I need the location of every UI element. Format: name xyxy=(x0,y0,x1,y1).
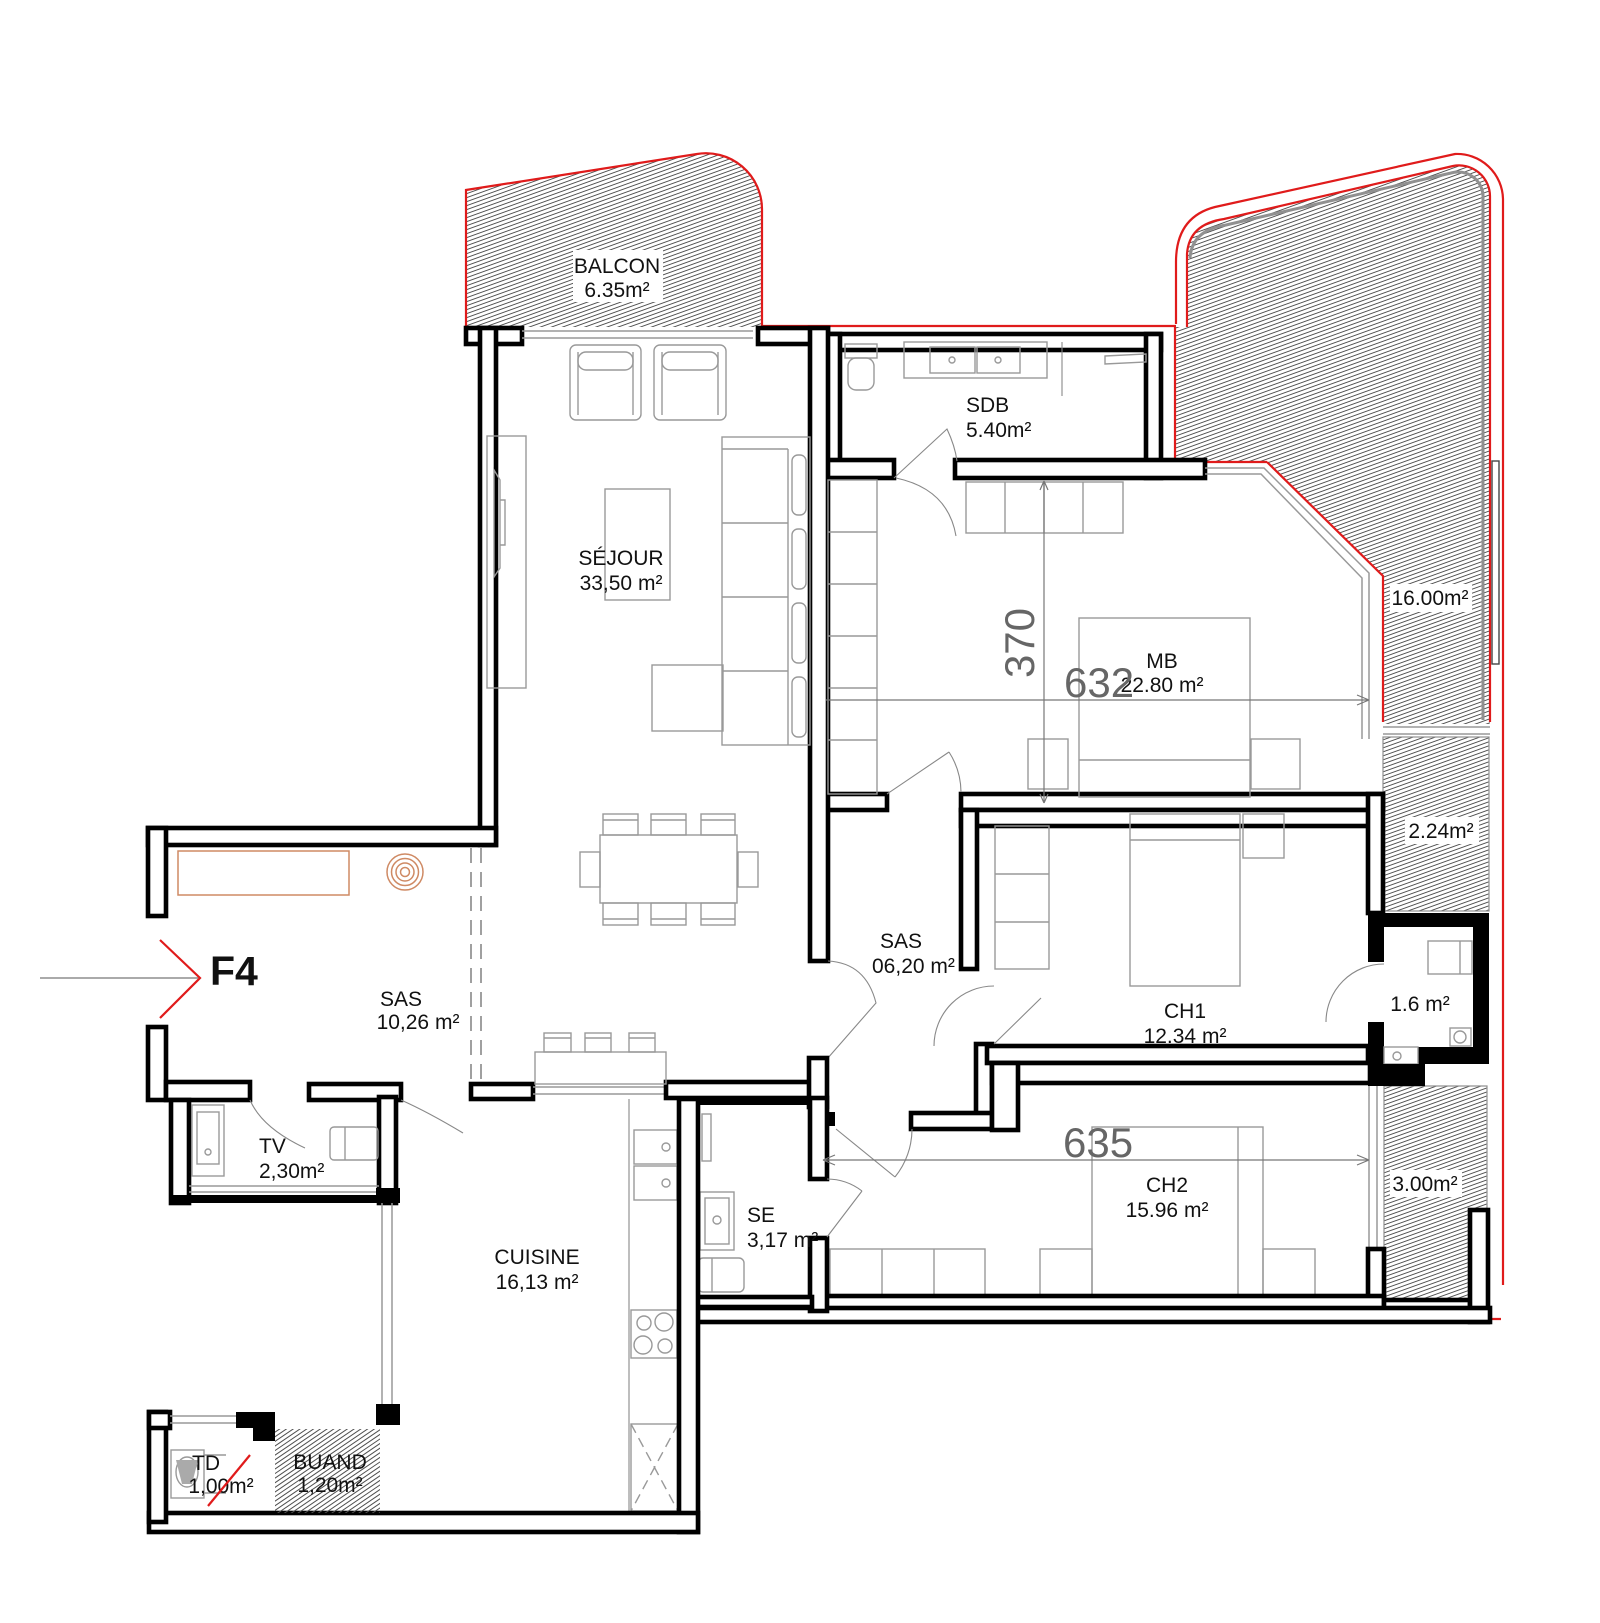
svg-text:1,20m²: 1,20m² xyxy=(297,1474,362,1497)
svg-text:5.40m²: 5.40m² xyxy=(966,419,1031,442)
svg-text:12.34 m²: 12.34 m² xyxy=(1144,1025,1227,1048)
svg-text:BALCON: BALCON xyxy=(574,255,660,278)
svg-text:6.35m²: 6.35m² xyxy=(584,279,649,302)
svg-text:2,30m²: 2,30m² xyxy=(259,1160,324,1183)
svg-text:2.24m²: 2.24m² xyxy=(1408,820,1473,843)
svg-text:3,17 m²: 3,17 m² xyxy=(747,1229,818,1252)
svg-text:1,00m²: 1,00m² xyxy=(188,1475,253,1498)
svg-text:MB: MB xyxy=(1146,650,1178,673)
svg-text:CH2: CH2 xyxy=(1146,1174,1188,1197)
svg-text:CH1: CH1 xyxy=(1164,1000,1206,1023)
svg-text:15.96 m²: 15.96 m² xyxy=(1126,1199,1209,1222)
svg-text:BUAND: BUAND xyxy=(293,1451,367,1474)
svg-text:SE: SE xyxy=(747,1204,775,1227)
svg-text:SAS: SAS xyxy=(880,930,922,953)
svg-text:SÉJOUR: SÉJOUR xyxy=(578,547,663,570)
svg-text:SDB: SDB xyxy=(966,394,1009,417)
svg-text:06,20 m²: 06,20 m² xyxy=(872,955,955,978)
svg-text:SAS: SAS xyxy=(380,988,422,1011)
svg-text:370: 370 xyxy=(996,608,1043,678)
svg-text:635: 635 xyxy=(1063,1119,1133,1166)
svg-text:632: 632 xyxy=(1064,659,1134,706)
svg-text:CUISINE: CUISINE xyxy=(494,1246,579,1269)
svg-text:3.00m²: 3.00m² xyxy=(1392,1173,1457,1196)
svg-text:33,50 m²: 33,50 m² xyxy=(580,572,663,595)
svg-text:TD: TD xyxy=(192,1452,220,1475)
svg-text:F4: F4 xyxy=(210,948,258,994)
svg-text:1.6 m²: 1.6 m² xyxy=(1390,993,1450,1016)
svg-text:16,13 m²: 16,13 m² xyxy=(496,1271,579,1294)
svg-text:TV: TV xyxy=(259,1135,286,1158)
svg-text:16.00m²: 16.00m² xyxy=(1391,587,1468,610)
svg-text:10,26 m²: 10,26 m² xyxy=(377,1011,460,1034)
